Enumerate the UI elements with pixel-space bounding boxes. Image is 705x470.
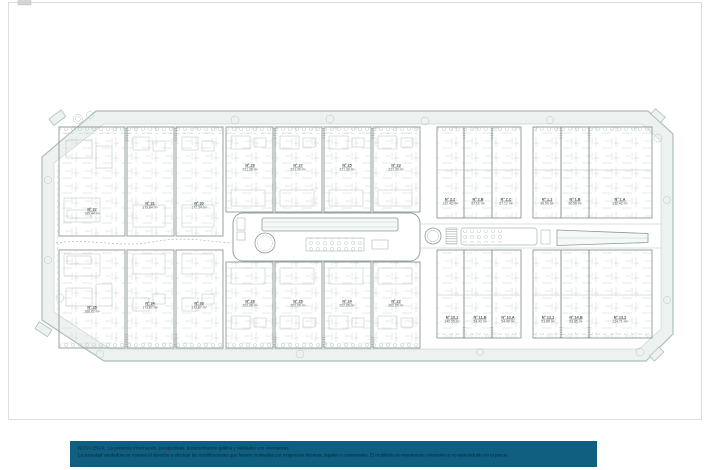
legal-note-text: NOTA LEGAL: La presente información, per… bbox=[78, 445, 597, 459]
legal-line-1: NOTA LEGAL: La presente información, per… bbox=[78, 445, 597, 452]
apartment-block bbox=[437, 250, 521, 338]
site-plan-svg bbox=[0, 0, 705, 470]
pool-promenade bbox=[233, 213, 420, 261]
townhouse-unit bbox=[176, 127, 223, 236]
corner-tab bbox=[49, 110, 66, 125]
page-root: Nº 32 185.44 m² Nº 31 173.84 m² Nº 30 17… bbox=[0, 0, 705, 470]
round-pool bbox=[255, 233, 275, 253]
main-pool bbox=[262, 218, 398, 231]
legal-note-band: NOTA LEGAL: La presente información, per… bbox=[70, 441, 597, 467]
townhouse-unit bbox=[127, 250, 174, 348]
apartment-block bbox=[437, 127, 521, 218]
center-unit bbox=[324, 262, 371, 348]
center-unit bbox=[226, 262, 273, 348]
townhouse-unit bbox=[127, 127, 174, 236]
page-frame-tab bbox=[18, 1, 31, 6]
center-unit bbox=[275, 262, 322, 348]
townhouse-unit bbox=[176, 250, 223, 348]
planter bbox=[306, 238, 364, 251]
legal-line-2: La sociedad vendedora se reserva el dere… bbox=[78, 452, 597, 459]
apartment-block bbox=[533, 250, 652, 338]
apartment-block bbox=[533, 127, 652, 218]
center-unit bbox=[373, 262, 420, 348]
